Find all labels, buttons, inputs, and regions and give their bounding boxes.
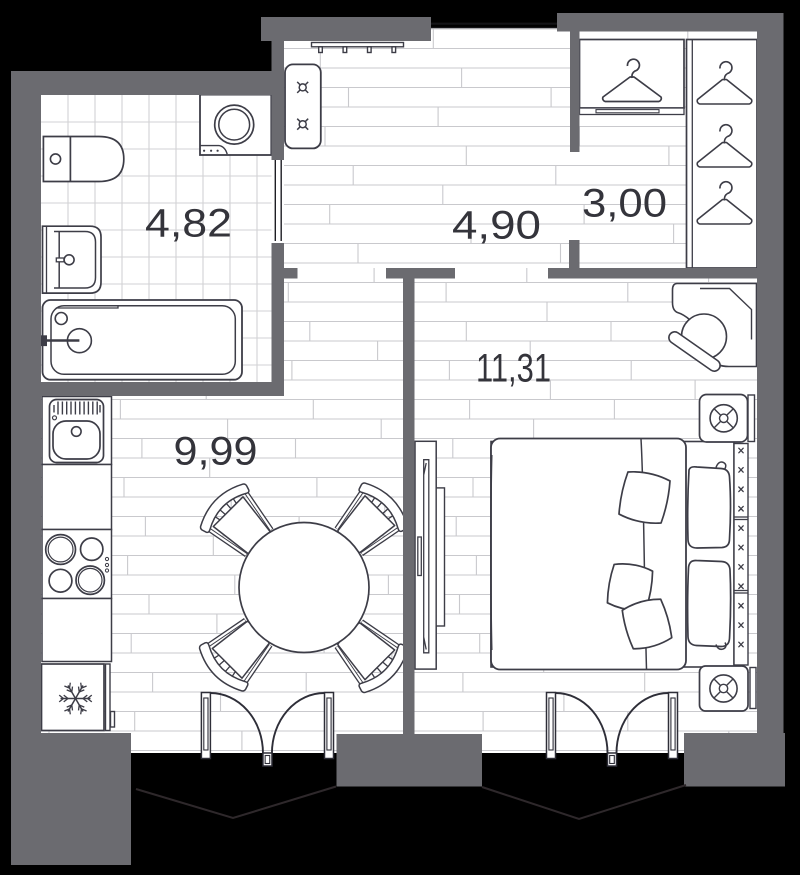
svg-text:9,99: 9,99 [174, 430, 258, 474]
svg-text:4,82: 4,82 [145, 202, 232, 246]
svg-text:11,31: 11,31 [476, 347, 551, 391]
svg-text:3,00: 3,00 [582, 182, 667, 226]
svg-text:4,90: 4,90 [452, 204, 541, 248]
